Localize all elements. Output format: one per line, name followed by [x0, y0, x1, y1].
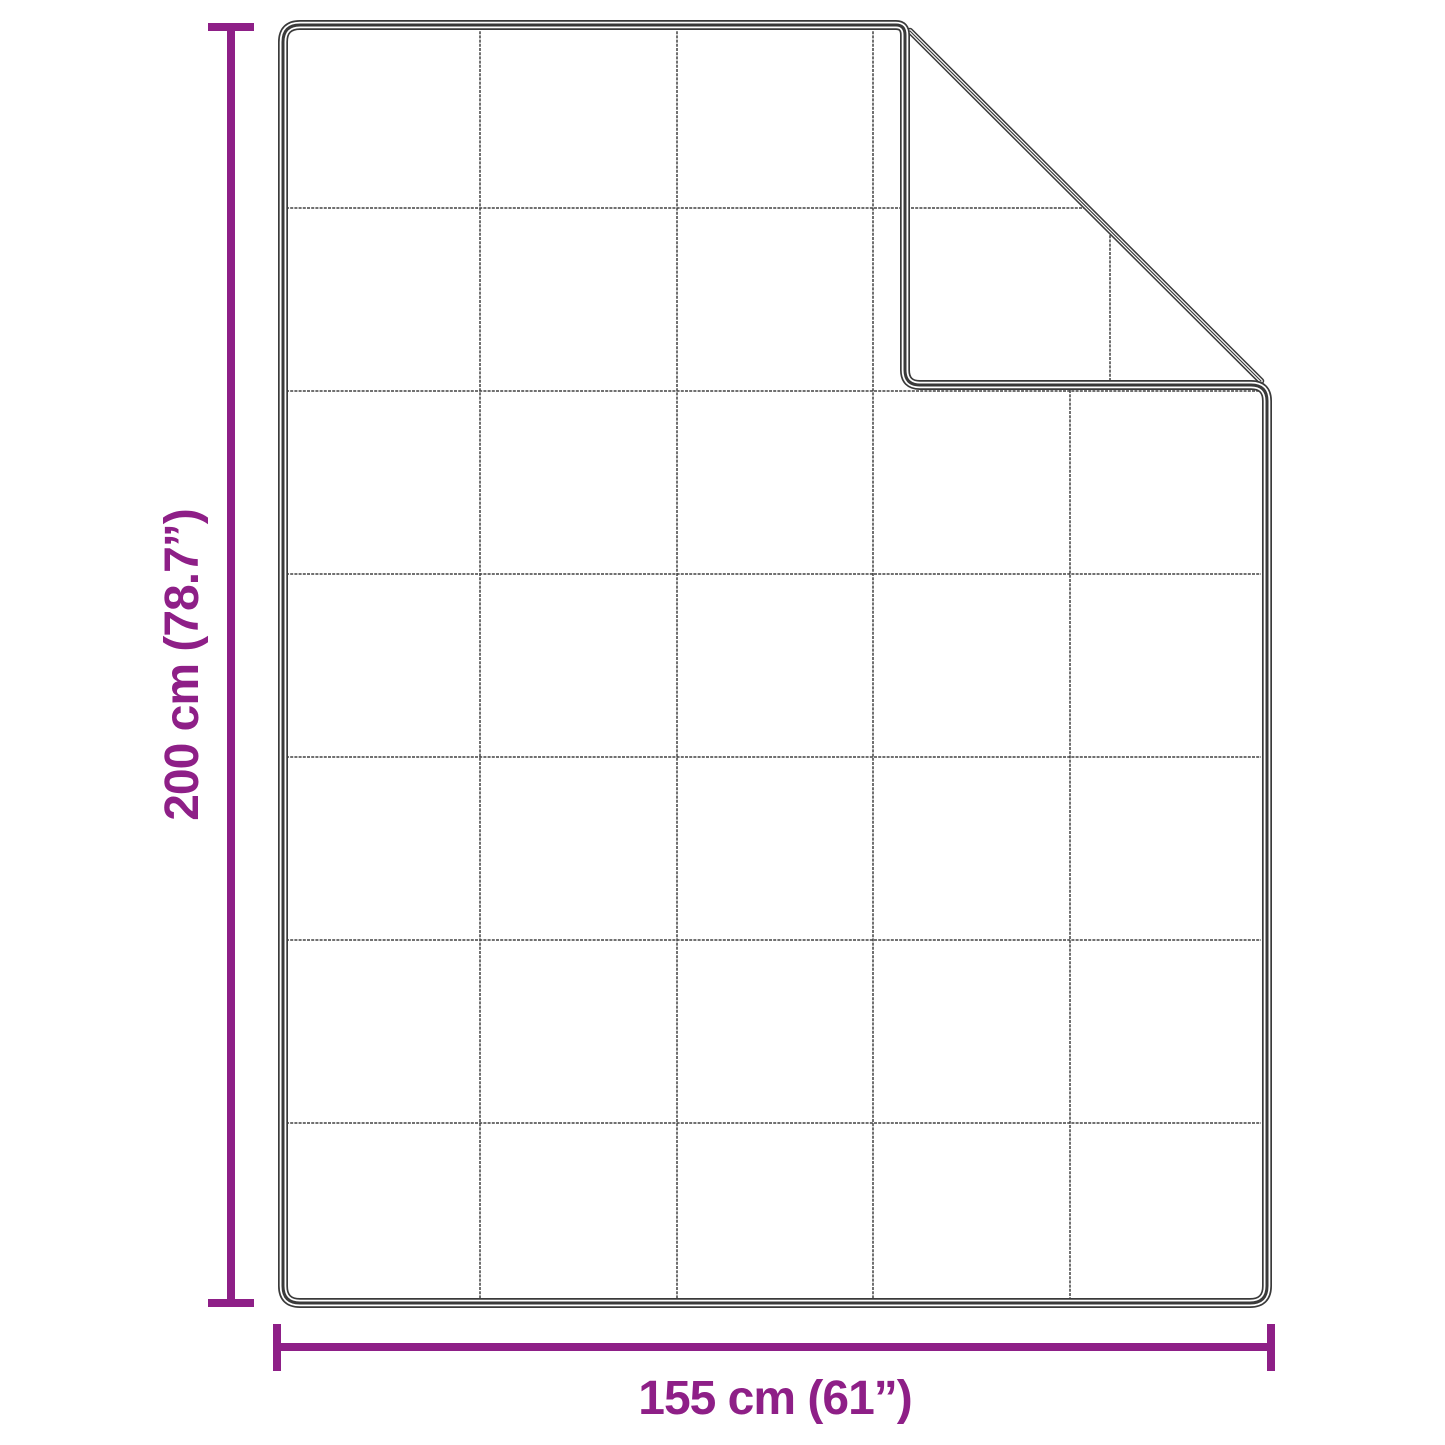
blanket-line-art: [0, 0, 1445, 1445]
blanket-edge-inner: [283, 25, 1267, 1303]
flap-grid: [911, 208, 1110, 380]
blanket-outline: [283, 25, 1267, 1303]
width-dimension-line: [277, 1324, 1271, 1371]
blanket-edge-gap: [283, 25, 1267, 1303]
quilt-grid: [286, 27, 1261, 1301]
fold-diagonal: [910, 31, 1261, 381]
blanket-edge-outer: [283, 25, 1267, 1303]
product-dimension-diagram: 200 cm (78.7”) 155 cm (61”): [0, 0, 1445, 1445]
height-dimension-line: [208, 27, 254, 1303]
height-dimension-label: 200 cm (78.7”): [159, 509, 207, 821]
width-dimension-label: 155 cm (61”): [638, 1375, 912, 1423]
